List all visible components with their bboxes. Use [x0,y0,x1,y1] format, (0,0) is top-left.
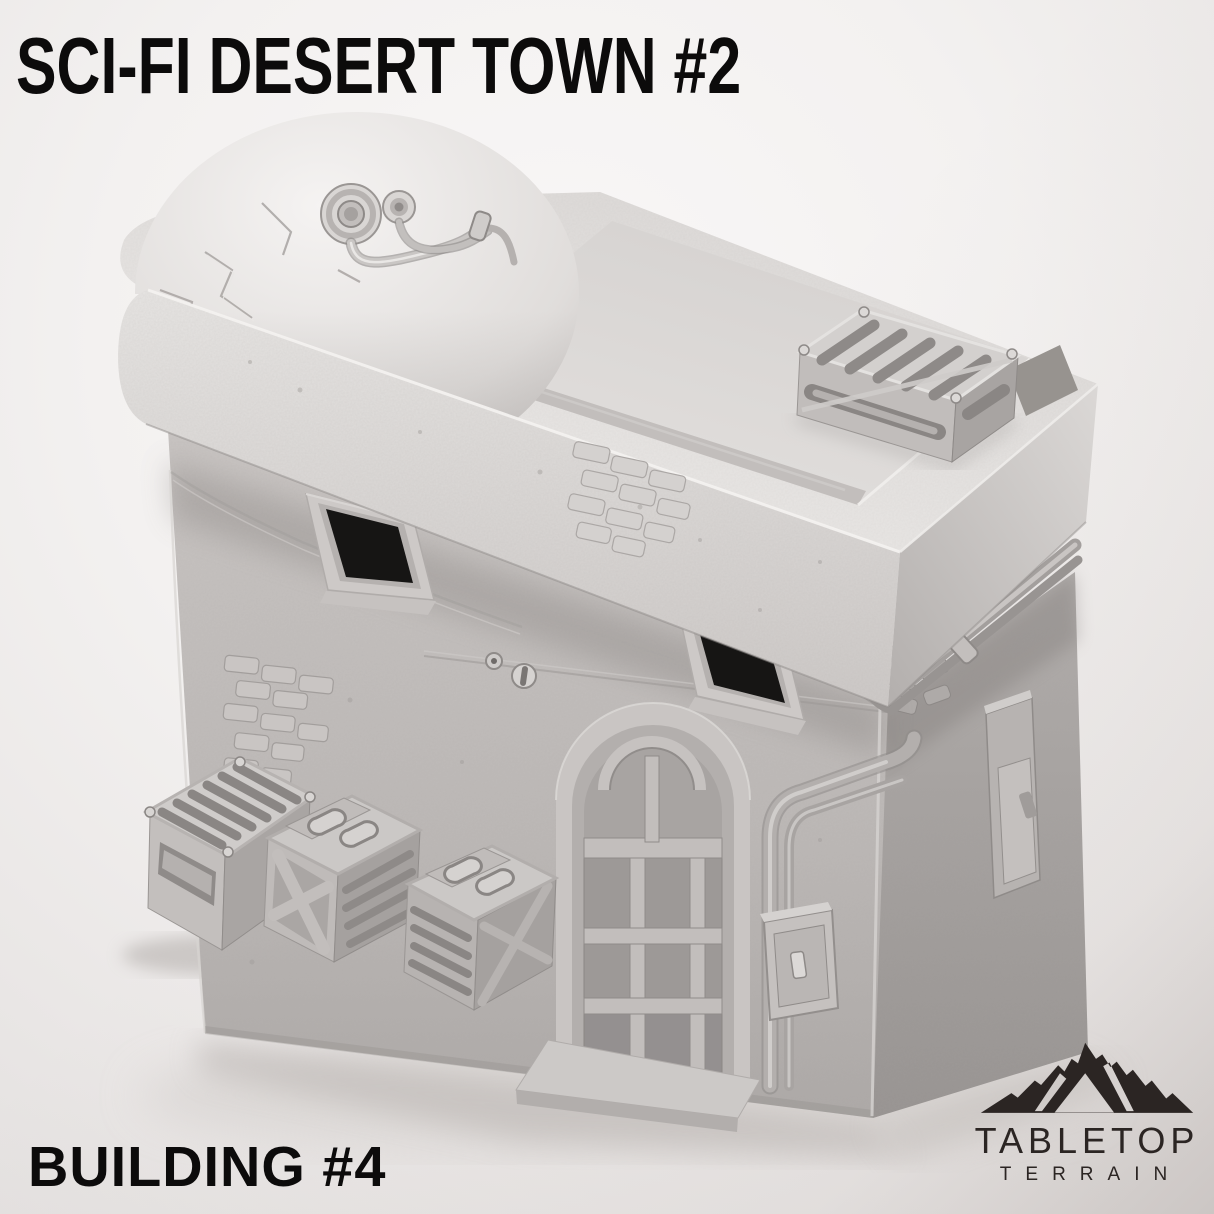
side-wall-panel [984,690,1040,898]
arched-door [556,703,750,1092]
junction-box [760,902,838,1020]
product-card: SCI-FI DESERT TOWN #2 BUILDING #4 TABLET… [0,0,1214,1214]
building-render [0,0,1214,1214]
brand-tagline: TERRAIN [993,1164,1181,1186]
brand-name: TABLETOP [975,1120,1200,1162]
mountain-icon [979,1036,1195,1116]
page-title: SCI-FI DESERT TOWN #2 [16,20,741,112]
building-label: BUILDING #4 [28,1134,386,1200]
brand-logo: TABLETOP TERRAIN [974,1036,1200,1186]
